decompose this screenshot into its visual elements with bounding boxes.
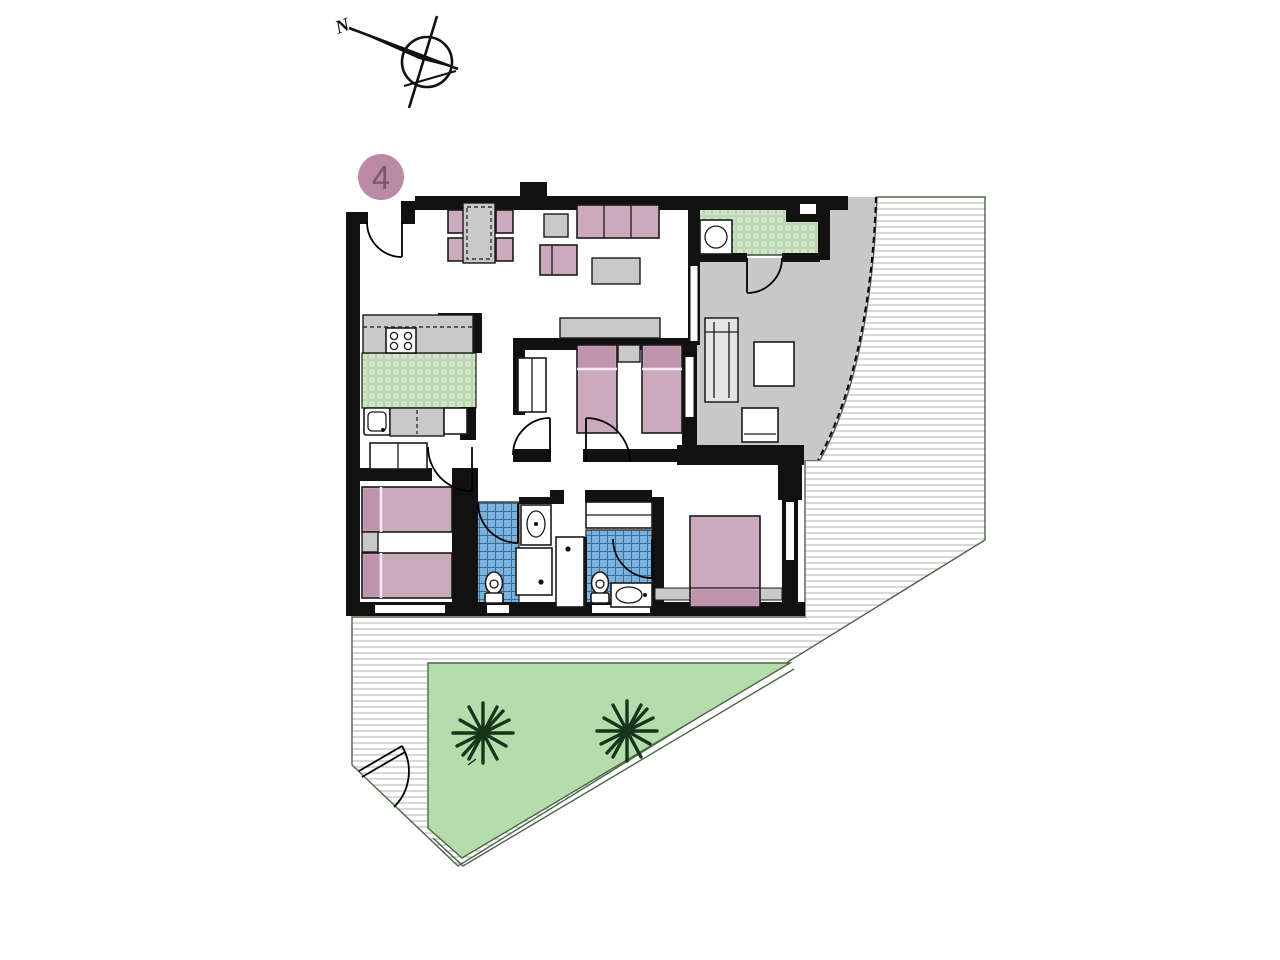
bathtub — [611, 583, 652, 607]
wardrobe — [518, 358, 546, 412]
window — [487, 605, 509, 613]
dining-table — [463, 203, 495, 263]
kitchen-counter-top — [363, 315, 473, 353]
nightstand — [618, 345, 640, 362]
terrace-table — [754, 342, 794, 386]
unit-number: 4 — [372, 159, 390, 196]
window — [375, 605, 445, 613]
sofa — [577, 205, 659, 238]
window — [800, 204, 816, 214]
floor-plan-drawing: N 4 — [0, 0, 1280, 960]
side-table — [544, 214, 568, 237]
floor-plan-page: N 4 — [0, 0, 1280, 960]
north-label: N — [332, 14, 354, 39]
dining-chair — [496, 210, 513, 233]
dining-table-set — [448, 203, 513, 263]
single-bed — [362, 553, 452, 598]
window — [691, 266, 698, 341]
toilet — [485, 572, 503, 603]
single-bed — [642, 345, 682, 433]
sun-lounger — [705, 318, 738, 402]
single-bed — [362, 487, 452, 532]
kitchen-hob — [386, 328, 416, 353]
laundry — [700, 220, 732, 254]
bathroom2-wardrobe — [586, 502, 652, 528]
shower-column — [556, 537, 584, 607]
hall-wardrobe — [370, 443, 427, 469]
north-compass-icon: N — [332, 14, 458, 108]
tv-unit — [560, 318, 660, 338]
washbasin — [521, 505, 551, 545]
toilet — [591, 572, 609, 603]
terrace-chair — [742, 408, 778, 442]
kitchen-floor-tiles — [362, 353, 476, 408]
garden — [428, 663, 794, 866]
window — [686, 357, 694, 417]
coffee-table — [592, 258, 640, 284]
armchair — [540, 245, 577, 275]
kitchen-cabinet — [444, 408, 467, 434]
double-bed — [690, 516, 760, 607]
dining-chair — [496, 238, 513, 261]
kitchen-sink — [364, 408, 390, 435]
nightstand — [362, 532, 378, 552]
unit-number-badge: 4 — [358, 154, 404, 200]
window — [786, 502, 794, 560]
shower-tray — [516, 548, 552, 595]
